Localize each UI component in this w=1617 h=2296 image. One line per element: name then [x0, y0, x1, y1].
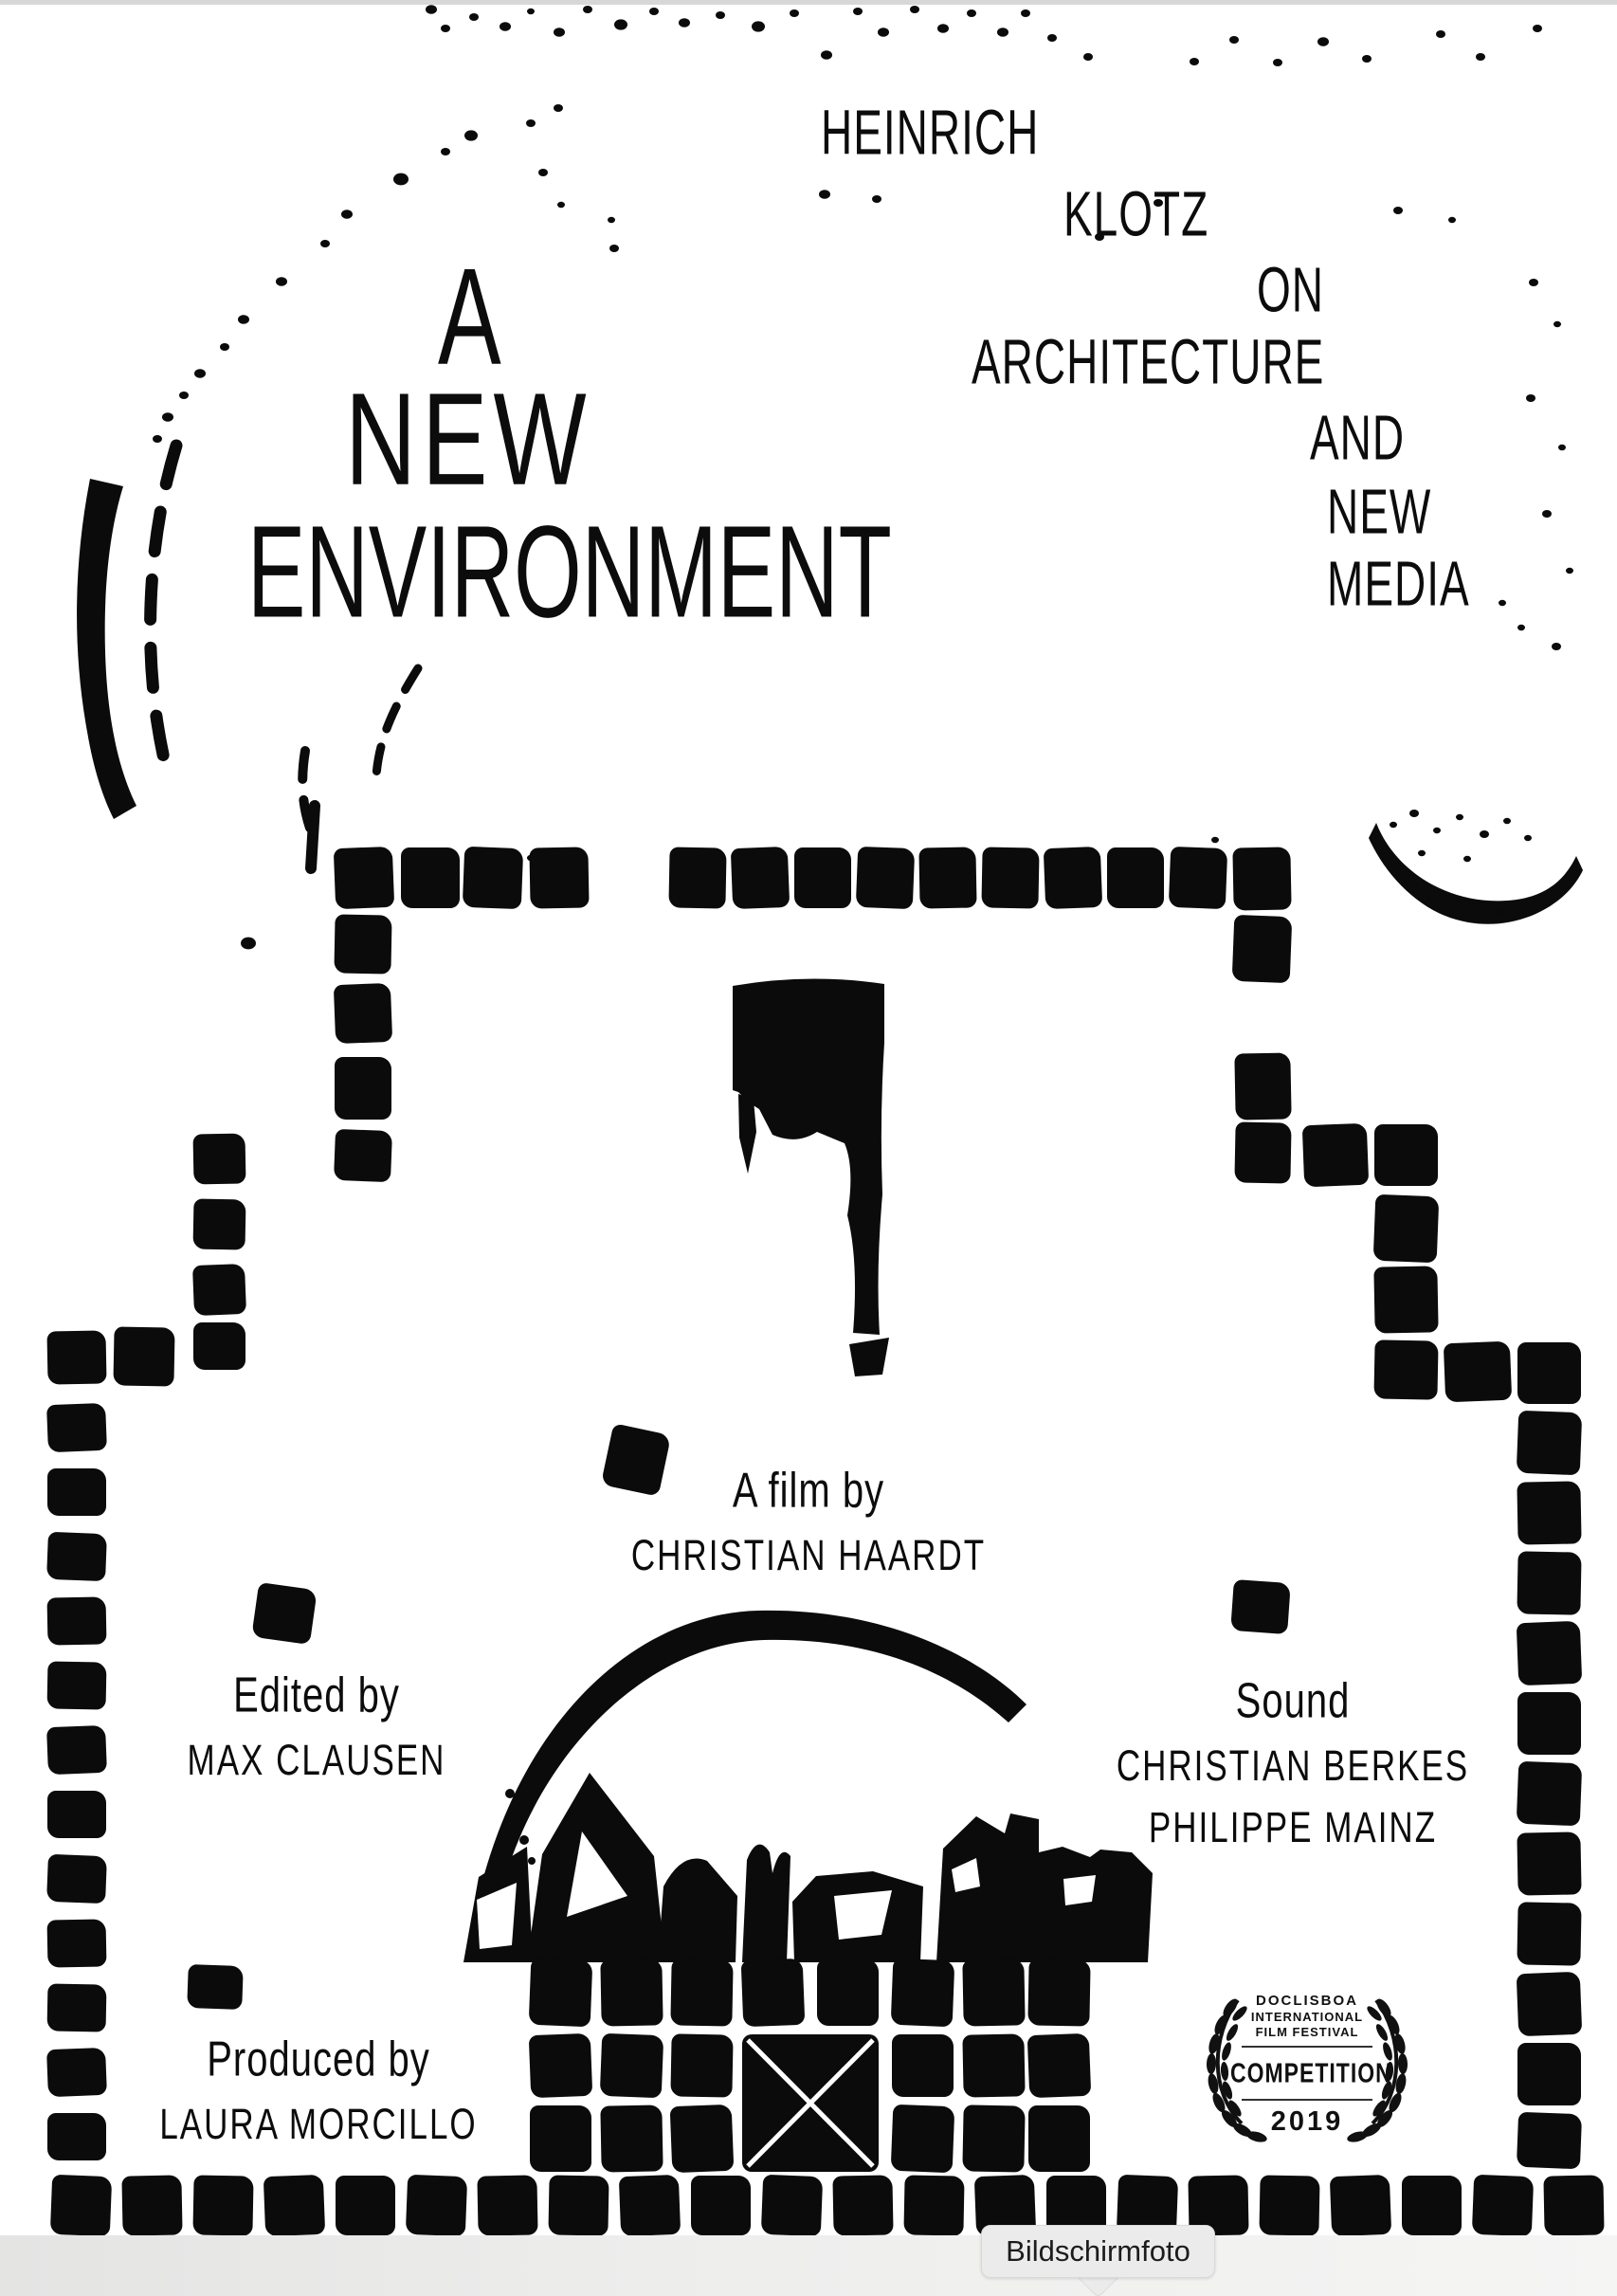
crown-dot — [426, 5, 437, 14]
crown-dot — [1566, 568, 1573, 574]
plan-square — [406, 2175, 467, 2236]
crown-dot — [1553, 321, 1561, 327]
crown-dot — [1418, 850, 1426, 856]
crown-dot — [614, 19, 627, 29]
plan-square — [113, 1326, 174, 1386]
crown-dot — [997, 27, 1008, 37]
plan-square — [251, 1582, 317, 1645]
plan-square — [463, 847, 523, 909]
plan-square — [619, 2175, 681, 2236]
crown-dot — [649, 8, 659, 15]
plan-square — [670, 2033, 733, 2097]
plan-square — [962, 2033, 1025, 2097]
crown-dot — [1211, 837, 1219, 843]
plan-square — [47, 1661, 107, 1709]
plan-square — [670, 2105, 735, 2173]
plan-square — [47, 1468, 106, 1516]
crown-dot — [1317, 37, 1329, 46]
plan-square — [47, 1596, 107, 1645]
badge-award: COMPETITION — [1230, 2057, 1384, 2089]
plan-square — [47, 1983, 107, 2032]
crown-dot — [1409, 810, 1419, 817]
badge-year: 2019 — [1230, 2106, 1384, 2138]
plan-square — [918, 847, 976, 908]
plan-square — [192, 1264, 246, 1316]
plan-square — [192, 2175, 253, 2235]
crown-dot — [1476, 53, 1485, 61]
plan-square — [1517, 1972, 1582, 2037]
plan-square — [1373, 1339, 1438, 1399]
tooltip-label: Bildschirmfoto — [1006, 2234, 1190, 2269]
plan-square — [761, 2175, 823, 2236]
crown-dot — [538, 169, 548, 176]
crown-dot — [500, 22, 511, 31]
crown-dot — [557, 202, 565, 208]
crown-dot — [819, 190, 830, 199]
plan-square — [1517, 1831, 1581, 1895]
crown-dot — [276, 277, 287, 286]
plan-square — [1472, 2175, 1534, 2236]
pillar-tail-blob — [849, 1338, 889, 1376]
plan-square — [334, 914, 391, 974]
crown-dot — [910, 6, 919, 13]
arc-dash-vertical — [311, 806, 315, 868]
plan-square — [1517, 1692, 1581, 1755]
plan-square — [1517, 1342, 1581, 1404]
plan-square — [46, 2048, 107, 2097]
crown-dot — [872, 195, 881, 203]
crown-dot — [583, 6, 592, 13]
plan-square — [335, 1057, 391, 1120]
crown-dot — [554, 104, 563, 112]
crown-dot — [464, 130, 478, 140]
crown-dot — [1273, 59, 1282, 66]
crown-dot — [341, 210, 353, 219]
blob-ears — [742, 1845, 790, 1962]
plan-square — [1373, 1194, 1440, 1264]
plan-square — [1543, 2175, 1604, 2235]
sound-name-2: PHILIPPE MAINZ — [1056, 1804, 1530, 1853]
arc-mid-dashed — [376, 668, 418, 775]
crown-dot — [752, 21, 765, 31]
plan-square — [1517, 1902, 1581, 1965]
plan-square — [856, 847, 915, 909]
plan-square — [981, 847, 1039, 908]
crown-dot — [1047, 34, 1057, 42]
plan-square — [817, 1959, 879, 2026]
plan-square — [46, 1330, 106, 1384]
crown-dot — [1436, 30, 1445, 38]
crown-dot — [1503, 818, 1511, 824]
crown-dot — [1480, 830, 1489, 838]
plan-square — [263, 2175, 325, 2236]
screenshot-root: Poster by www... A NEW ENVIRONMENT HEINR… — [0, 0, 1617, 2296]
plan-square — [529, 1959, 593, 2027]
crown-dot — [1529, 279, 1538, 286]
plan-square — [600, 2105, 663, 2172]
crown-dot — [716, 11, 725, 19]
crown-dot — [1083, 53, 1093, 61]
crown-dot — [554, 27, 565, 37]
plan-square — [1027, 1959, 1090, 2026]
plan-square — [1234, 1121, 1291, 1183]
crown-dot — [441, 148, 450, 155]
plan-square — [47, 1791, 106, 1838]
crown-dot — [1456, 814, 1463, 820]
crown-dot — [1390, 822, 1397, 828]
plan-square — [1517, 1481, 1581, 1544]
crown-dot — [393, 173, 409, 186]
plan-square — [334, 847, 394, 909]
crown-dot — [1558, 445, 1566, 450]
plan-square — [193, 1322, 245, 1370]
screenshot-bottom-bar — [0, 2235, 1617, 2296]
subtitle-word-heinrich: HEINRICH — [821, 100, 1039, 164]
credit-edited: Edited by MAX CLAUSEN — [80, 1668, 554, 1786]
plan-square — [962, 2105, 1025, 2172]
plan-square — [1517, 2112, 1582, 2170]
plan-square — [1259, 2175, 1319, 2235]
crown-dot — [153, 435, 162, 443]
plan-square — [192, 1198, 245, 1249]
plan-square — [600, 2033, 663, 2098]
plan-square — [1517, 1551, 1581, 1614]
crown-dot — [1393, 207, 1403, 214]
crown-dot — [194, 369, 206, 378]
plan-square — [1374, 1124, 1438, 1186]
crown-dot — [1552, 643, 1561, 650]
title-line-3: ENVIRONMENT — [247, 507, 892, 638]
plan-square — [1234, 1052, 1291, 1120]
subtitle-word-klotz: KLOTZ — [1063, 182, 1208, 246]
title-line-2: NEW — [345, 374, 592, 505]
plan-square — [1444, 1341, 1512, 1403]
plan-square — [1373, 1266, 1438, 1333]
plan-square — [1232, 915, 1293, 983]
plan-square — [46, 1403, 107, 1452]
plan-square — [334, 983, 392, 1044]
subtitle-word-media: MEDIA — [1327, 552, 1470, 615]
crown-dot — [1524, 835, 1532, 841]
crown-dot — [1463, 856, 1471, 862]
plan-square — [1230, 1579, 1291, 1634]
badge-festival-name: DOCLISBOA — [1230, 1993, 1384, 2009]
plan-square — [892, 2034, 954, 2097]
crown-dot — [162, 412, 173, 422]
plan-square — [401, 847, 460, 908]
plan-square — [1302, 1123, 1369, 1188]
plan-square — [794, 847, 851, 908]
pillar-shape — [733, 978, 884, 1335]
crown-dot — [679, 18, 690, 27]
arc-left-stroke — [77, 479, 136, 819]
plan-square — [903, 2175, 964, 2235]
plan-square — [668, 847, 726, 908]
plan-square — [477, 2175, 537, 2235]
plan-square — [46, 1532, 107, 1581]
crown-dot — [790, 9, 799, 17]
plan-square — [530, 2105, 591, 2172]
crown-dot — [320, 240, 330, 247]
subtitle-word-new: NEW — [1327, 480, 1431, 543]
crown-dot — [1533, 25, 1542, 32]
crown-dot — [469, 13, 479, 21]
crown-dot — [1190, 58, 1199, 65]
plan-square — [600, 1959, 663, 2026]
plan-square — [47, 1919, 107, 1967]
plan-square — [670, 1959, 733, 2026]
crown-dot — [526, 119, 536, 127]
badge-festival-line3: FILM FESTIVAL — [1230, 2025, 1384, 2039]
crown-dot — [1229, 36, 1239, 44]
produced-name: LAURA MORCILLO — [82, 2101, 555, 2150]
plan-square — [832, 2175, 893, 2235]
sound-label: Sound — [1056, 1674, 1530, 1730]
plan-square — [731, 847, 790, 909]
plan-square — [891, 1959, 955, 2027]
plan-square — [192, 1133, 245, 1184]
crown-dot — [441, 25, 450, 32]
plan-square — [962, 1959, 1025, 2026]
crown-dot — [179, 392, 189, 399]
plan-square — [187, 1964, 244, 2010]
plan-square — [1402, 2176, 1462, 2235]
subtitle-word-architecture: ARCHITECTURE — [972, 330, 1324, 393]
crown-dot — [967, 9, 976, 17]
badge-divider-top — [1242, 2046, 1372, 2048]
plan-square — [1232, 847, 1291, 910]
crown-dot — [1448, 217, 1456, 223]
plan-square — [1517, 1621, 1582, 1686]
plan-x-square — [742, 2034, 879, 2172]
crown-dot — [1526, 394, 1535, 402]
plan-square — [336, 2176, 395, 2235]
pillar-drip — [738, 1094, 756, 1174]
subtitle-word-and: AND — [1310, 406, 1405, 469]
crown-dot — [241, 938, 256, 950]
plan-square — [1517, 1411, 1582, 1476]
crown-dot — [527, 9, 535, 14]
plan-square — [121, 2175, 182, 2235]
edited-label: Edited by — [80, 1668, 554, 1724]
film-by-name: CHRISTIAN HAARDT — [572, 1532, 1045, 1581]
plan-square — [529, 847, 589, 908]
plan-square — [46, 1854, 107, 1904]
plan-square — [1517, 1761, 1582, 1827]
crown-dot — [238, 315, 249, 324]
plan-square — [1107, 847, 1164, 908]
crown-dot — [937, 24, 949, 33]
arc-left-inner-dashed — [151, 446, 176, 763]
crown-dot — [1499, 600, 1506, 606]
screenshot-tooltip: Bildschirmfoto — [981, 2225, 1215, 2278]
plan-square — [1330, 2175, 1391, 2236]
plan-square — [529, 2033, 592, 2098]
plan-square — [548, 2175, 609, 2235]
plan-square — [741, 1959, 806, 2027]
crown-dot — [220, 343, 229, 351]
festival-badge: DOCLISBOA INTERNATIONAL FILM FESTIVAL CO… — [1183, 1979, 1431, 2150]
credit-sound: Sound CHRISTIAN BERKES PHILIPPE MAINZ — [1056, 1674, 1530, 1853]
crown-dot — [853, 8, 863, 15]
credit-produced: Produced by LAURA MORCILLO — [82, 2032, 555, 2150]
title-line-1: A — [438, 248, 502, 386]
blob-right-hole2 — [1063, 1875, 1096, 1905]
plan-square — [1169, 847, 1227, 909]
produced-label: Produced by — [82, 2032, 555, 2088]
blob-mid — [658, 1859, 737, 1962]
crown-dot — [1021, 9, 1030, 17]
sound-name-1: CHRISTIAN BERKES — [1056, 1742, 1530, 1792]
badge-divider-bottom — [1242, 2099, 1372, 2101]
plan-square — [1027, 2033, 1091, 2098]
plan-square — [1028, 2105, 1090, 2172]
plan-square — [334, 1129, 392, 1182]
edited-name: MAX CLAUSEN — [80, 1737, 554, 1786]
plan-square — [691, 2176, 751, 2235]
crown-dot — [608, 217, 615, 223]
crown-dot — [609, 245, 619, 252]
crown-dot — [1362, 55, 1372, 63]
crown-dot — [878, 27, 889, 37]
plan-square — [47, 2113, 106, 2160]
plan-square — [891, 2105, 955, 2173]
plan-square — [46, 1725, 107, 1775]
subtitle-word-on: ON — [1257, 258, 1324, 321]
plan-square — [1044, 847, 1102, 909]
crown-dot — [821, 50, 832, 60]
plan-square — [50, 2175, 112, 2236]
crown-dot — [1517, 625, 1525, 630]
crown-dot — [1433, 828, 1441, 833]
badge-festival-line2: INTERNATIONAL — [1230, 2010, 1384, 2024]
plan-square — [1517, 2043, 1581, 2105]
crown-dot — [1542, 510, 1552, 518]
